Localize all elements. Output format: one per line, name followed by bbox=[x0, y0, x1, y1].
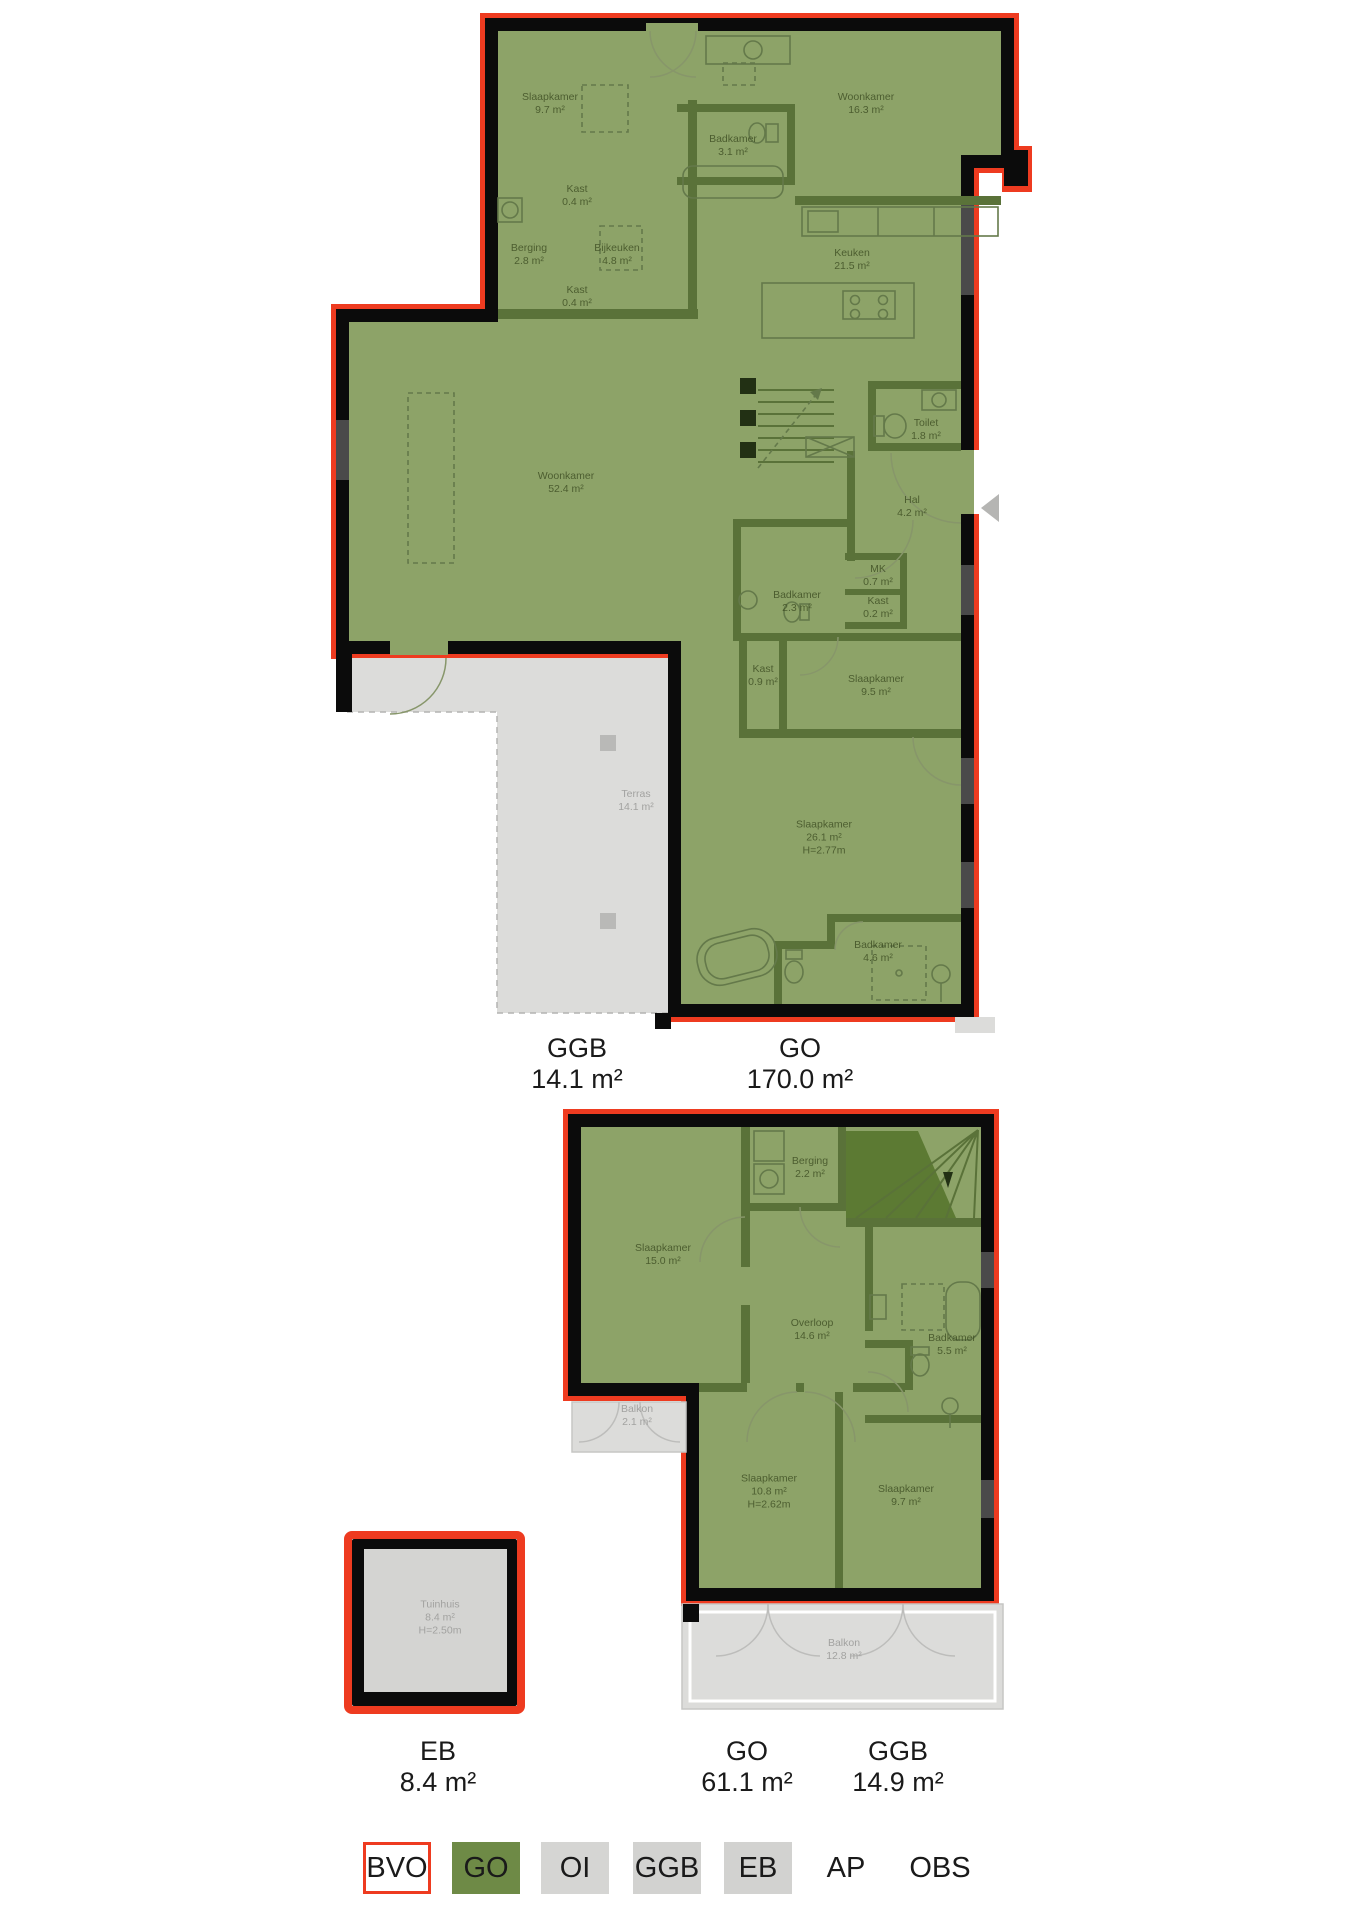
room-label-hal: Hal4.2 m² bbox=[897, 494, 927, 520]
room-label-balkon: Balkon2.1 m² bbox=[621, 1403, 653, 1429]
area-label-ggb: GGB14.1 m² bbox=[531, 1033, 623, 1095]
room-label-terras: Terras14.1 m² bbox=[618, 788, 654, 814]
area-label-go: GO170.0 m² bbox=[747, 1033, 854, 1095]
legend-item-bvo: BVO bbox=[363, 1842, 431, 1894]
room-label-kast: Kast0.4 m² bbox=[562, 284, 592, 310]
room-label-berging: Berging2.8 m² bbox=[511, 242, 547, 268]
room-label-berging: Berging2.2 m² bbox=[792, 1155, 828, 1181]
room-label-slaapkamer: Slaapkamer9.7 m² bbox=[522, 91, 578, 117]
area-label-eb: EB8.4 m² bbox=[400, 1736, 477, 1798]
legend-item-ggb: GGB bbox=[633, 1842, 701, 1894]
labels-layer: Slaapkamer9.7 m²Woonkamer16.3 m²Badkamer… bbox=[0, 0, 1358, 1920]
room-label-kast: Kast0.2 m² bbox=[863, 595, 893, 621]
room-label-toilet: Toilet1.8 m² bbox=[911, 417, 941, 443]
room-label-badkamer: Badkamer5.5 m² bbox=[928, 1332, 976, 1358]
room-label-mk: MK0.7 m² bbox=[863, 563, 893, 589]
room-label-kast: Kast0.4 m² bbox=[562, 183, 592, 209]
room-label-slaapkamer: Slaapkamer26.1 m²H=2.77m bbox=[796, 819, 852, 858]
legend: BVOGOOIGGBEBAPOBS bbox=[0, 1842, 1358, 1894]
legend-item-go: GO bbox=[452, 1842, 520, 1894]
room-label-overloop: Overloop14.6 m² bbox=[791, 1317, 834, 1343]
room-label-tuinhuis: Tuinhuis8.4 m²H=2.50m bbox=[419, 1599, 462, 1638]
room-label-woonkamer: Woonkamer52.4 m² bbox=[538, 470, 594, 496]
room-label-bijkeuken: Bijkeuken4.8 m² bbox=[594, 242, 640, 268]
room-label-keuken: Keuken21.5 m² bbox=[834, 247, 870, 273]
legend-item-obs: OBS bbox=[906, 1842, 974, 1894]
room-label-balkon: Balkon12.8 m² bbox=[826, 1637, 862, 1663]
area-label-go: GO61.1 m² bbox=[701, 1736, 793, 1798]
legend-item-ap: AP bbox=[812, 1842, 880, 1894]
room-label-slaapkamer: Slaapkamer15.0 m² bbox=[635, 1242, 691, 1268]
room-label-slaapkamer: Slaapkamer10.8 m²H=2.62m bbox=[741, 1473, 797, 1512]
room-label-slaapkamer: Slaapkamer9.5 m² bbox=[848, 673, 904, 699]
room-label-slaapkamer: Slaapkamer9.7 m² bbox=[878, 1483, 934, 1509]
room-label-badkamer: Badkamer2.3 m² bbox=[773, 589, 821, 615]
room-label-badkamer: Badkamer4.6 m² bbox=[854, 939, 902, 965]
room-label-kast: Kast0.9 m² bbox=[748, 663, 778, 689]
floorplan-page: Slaapkamer9.7 m²Woonkamer16.3 m²Badkamer… bbox=[0, 0, 1358, 1920]
legend-item-eb: EB bbox=[724, 1842, 792, 1894]
room-label-badkamer: Badkamer3.1 m² bbox=[709, 133, 757, 159]
room-label-woonkamer: Woonkamer16.3 m² bbox=[838, 91, 894, 117]
area-label-ggb: GGB14.9 m² bbox=[852, 1736, 944, 1798]
legend-item-oi: OI bbox=[541, 1842, 609, 1894]
